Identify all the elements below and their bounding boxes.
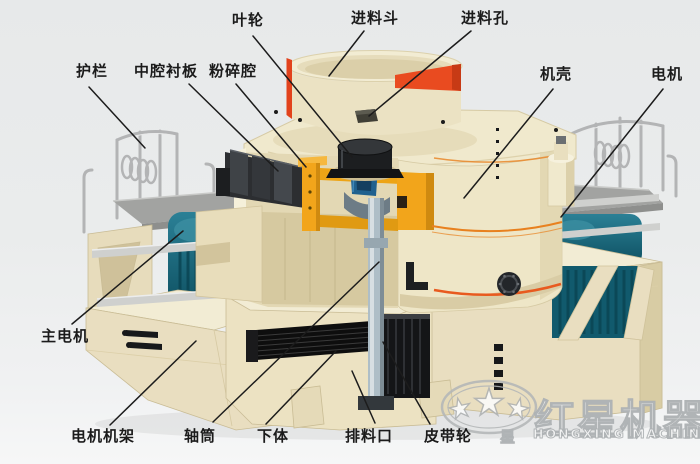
hopper-red-strip xyxy=(287,58,293,119)
right-motor-lower xyxy=(552,266,654,340)
feed-hopper-part xyxy=(287,51,463,136)
label-main-motor: 主电机 xyxy=(41,327,89,345)
label-casing: 机壳 xyxy=(540,65,572,83)
label-shaft-tube: 轴筒 xyxy=(184,427,216,445)
label-impeller: 叶轮 xyxy=(232,11,264,29)
label-feed-hopper: 进料斗 xyxy=(351,9,399,27)
label-motor: 电机 xyxy=(651,65,683,83)
label-middle-cavity-liner: 中腔衬板 xyxy=(134,62,198,80)
label-crushing-chamber: 粉碎腔 xyxy=(209,62,257,80)
label-motor-frame: 电机机架 xyxy=(71,427,135,445)
label-feed-hole: 进料孔 xyxy=(461,9,509,27)
label-discharge-port: 排料口 xyxy=(345,427,393,445)
label-lower-body: 下体 xyxy=(257,427,289,445)
label-belt-pulley: 皮带轮 xyxy=(424,427,472,445)
diagram-stage: 叶轮 进料斗 进料孔 护栏 中腔衬板 粉碎腔 机壳 电机 主电机 电机机架 轴筒… xyxy=(0,0,700,464)
label-guardrail: 护栏 xyxy=(76,62,108,80)
watermark-star-char: 星 xyxy=(500,426,515,447)
watermark-brand-en: HONGXING MACHINERY xyxy=(533,426,700,441)
